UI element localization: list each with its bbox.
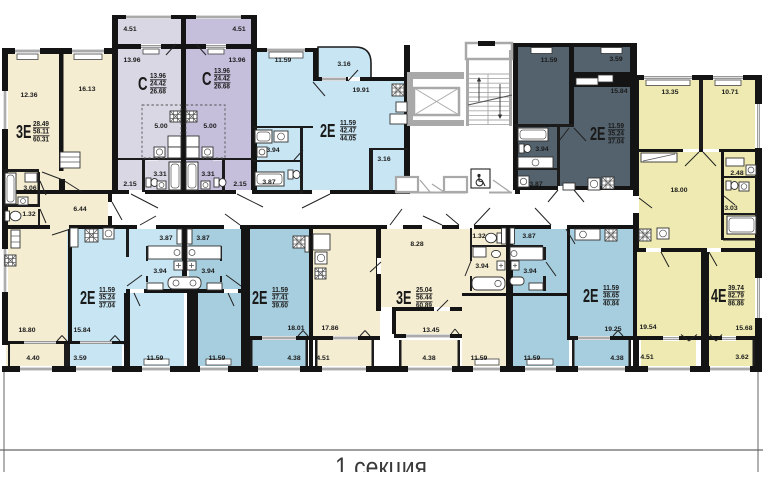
svg-text:18.00: 18.00 bbox=[670, 187, 687, 194]
svg-text:2.48: 2.48 bbox=[730, 170, 743, 177]
svg-text:13.96: 13.96 bbox=[228, 57, 245, 64]
svg-text:1.32: 1.32 bbox=[472, 233, 485, 240]
svg-text:С: С bbox=[138, 73, 148, 94]
svg-text:19.91: 19.91 bbox=[352, 87, 369, 94]
svg-text:2Е: 2Е bbox=[252, 287, 268, 308]
svg-text:4.40: 4.40 bbox=[26, 355, 39, 362]
svg-text:3.16: 3.16 bbox=[377, 156, 390, 163]
svg-text:11.59: 11.59 bbox=[275, 57, 292, 64]
svg-text:15.84: 15.84 bbox=[610, 88, 627, 95]
svg-text:19.54: 19.54 bbox=[639, 324, 656, 331]
svg-text:2.15: 2.15 bbox=[233, 181, 246, 188]
svg-text:8.28: 8.28 bbox=[410, 241, 423, 248]
svg-text:2Е: 2Е bbox=[590, 123, 606, 144]
svg-text:3.87: 3.87 bbox=[262, 179, 275, 186]
svg-text:3.59: 3.59 bbox=[73, 355, 86, 362]
svg-text:4Е: 4Е bbox=[711, 285, 727, 306]
svg-text:3.06: 3.06 bbox=[23, 185, 36, 192]
svg-text:3.16: 3.16 bbox=[337, 61, 350, 68]
svg-text:15.68: 15.68 bbox=[735, 325, 752, 332]
svg-text:3.87: 3.87 bbox=[159, 235, 172, 242]
svg-text:10.71: 10.71 bbox=[721, 89, 738, 96]
svg-text:11.59: 11.59 bbox=[541, 57, 558, 64]
svg-text:4.51: 4.51 bbox=[123, 26, 136, 33]
svg-text:13.96: 13.96 bbox=[123, 57, 140, 64]
svg-text:4.38: 4.38 bbox=[610, 355, 623, 362]
svg-text:3.94: 3.94 bbox=[523, 268, 536, 275]
svg-text:18.01: 18.01 bbox=[287, 325, 304, 332]
svg-text:2Е: 2Е bbox=[320, 120, 336, 141]
svg-text:3.94: 3.94 bbox=[535, 146, 548, 153]
svg-text:3.87: 3.87 bbox=[522, 233, 535, 240]
svg-text:16.13: 16.13 bbox=[78, 86, 95, 93]
svg-text:3.87: 3.87 bbox=[196, 235, 209, 242]
svg-text:4.38: 4.38 bbox=[422, 355, 435, 362]
svg-text:4.51: 4.51 bbox=[640, 354, 653, 361]
svg-text:6.44: 6.44 bbox=[73, 206, 86, 213]
svg-text:3Е: 3Е bbox=[396, 287, 412, 308]
svg-text:12.36: 12.36 bbox=[20, 92, 37, 99]
svg-text:2Е: 2Е bbox=[583, 285, 599, 306]
svg-text:1.32: 1.32 bbox=[22, 211, 35, 218]
svg-text:13.35: 13.35 bbox=[661, 89, 678, 96]
svg-text:3.87: 3.87 bbox=[529, 181, 542, 188]
svg-text:4.38: 4.38 bbox=[287, 355, 300, 362]
svg-text:2Е: 2Е bbox=[80, 287, 96, 308]
svg-text:3.94: 3.94 bbox=[266, 147, 279, 154]
svg-text:С: С bbox=[202, 68, 212, 89]
svg-text:5.00: 5.00 bbox=[203, 123, 216, 130]
svg-text:3.94: 3.94 bbox=[201, 268, 214, 275]
svg-text:3.94: 3.94 bbox=[153, 268, 166, 275]
svg-text:3.31: 3.31 bbox=[153, 171, 166, 178]
svg-text:3.94: 3.94 bbox=[475, 263, 488, 270]
svg-text:15.84: 15.84 bbox=[73, 327, 90, 334]
svg-text:1 секция: 1 секция bbox=[335, 452, 427, 472]
svg-text:3.62: 3.62 bbox=[735, 354, 748, 361]
svg-text:3Е: 3Е bbox=[16, 121, 32, 142]
svg-text:18.80: 18.80 bbox=[18, 327, 35, 334]
svg-text:11.59: 11.59 bbox=[524, 355, 541, 362]
svg-text:3.59: 3.59 bbox=[609, 56, 622, 63]
svg-text:3.31: 3.31 bbox=[201, 171, 214, 178]
svg-text:17.86: 17.86 bbox=[321, 325, 338, 332]
svg-text:2.15: 2.15 bbox=[123, 181, 136, 188]
svg-text:5.00: 5.00 bbox=[154, 123, 167, 130]
svg-text:4.51: 4.51 bbox=[232, 26, 245, 33]
svg-text:19.25: 19.25 bbox=[604, 326, 621, 333]
svg-text:11.59: 11.59 bbox=[147, 355, 164, 362]
svg-text:13.45: 13.45 bbox=[422, 327, 439, 334]
svg-text:3.03: 3.03 bbox=[724, 205, 737, 212]
svg-text:11.59: 11.59 bbox=[471, 355, 488, 362]
svg-text:4.51: 4.51 bbox=[316, 355, 329, 362]
svg-text:11.59: 11.59 bbox=[209, 355, 226, 362]
